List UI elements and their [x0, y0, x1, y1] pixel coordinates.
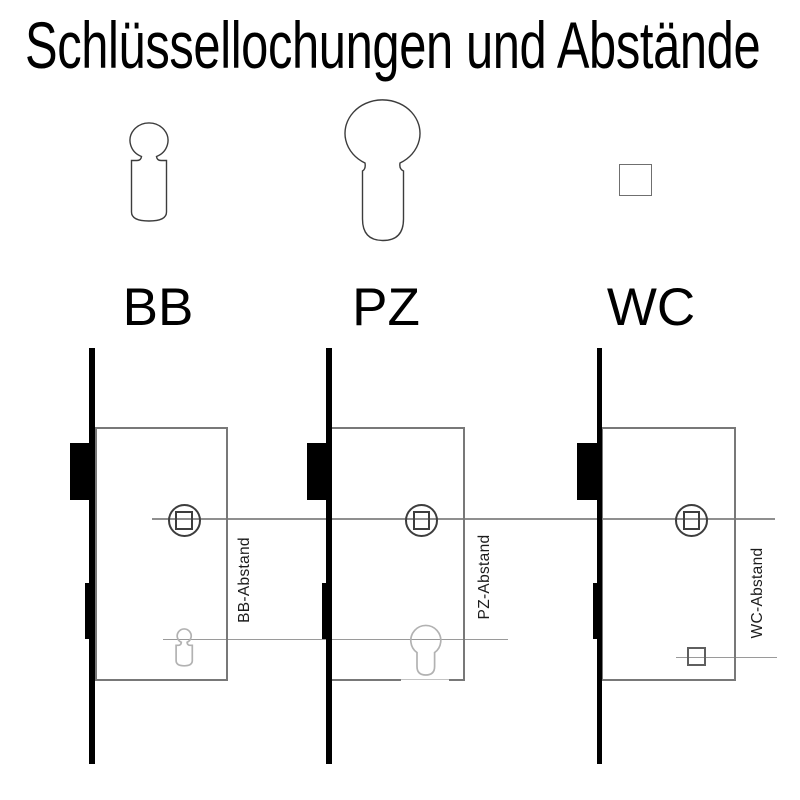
latch-bolt-pz: [307, 443, 330, 500]
pz-cylinder-icon: [330, 90, 440, 255]
dimension-label-pz: PZ-Abstand: [477, 522, 493, 632]
latch-bolt-wc: [577, 443, 600, 500]
deadbolt-pz: [322, 583, 332, 639]
lock-body-bb: [95, 427, 229, 681]
faceplate-wc: [597, 348, 603, 764]
wc-square-cutout: [687, 647, 707, 667]
bb-keyhole-icon: [120, 110, 185, 230]
spindle-square-wc: [683, 511, 701, 530]
page-title: Schlüssellochungen und Abstände: [25, 12, 760, 78]
dimension-label-bb: BB-Abstand: [237, 525, 253, 635]
deadbolt-wc: [593, 583, 603, 639]
wc-square-icon: [619, 164, 652, 197]
deadbolt-bb: [85, 583, 95, 639]
pz-cylinder-cutout: [405, 620, 450, 680]
spindle-square-bb: [175, 511, 193, 530]
diagram-canvas: Schlüssellochungen und Abstände BB PZ WC…: [0, 0, 800, 800]
key-type-label-wc: WC: [591, 281, 711, 334]
key-type-label-pz: PZ: [326, 281, 446, 334]
faceplate-pz: [326, 348, 332, 764]
faceplate-bb: [89, 348, 95, 764]
lock-body-wc: [601, 427, 737, 681]
spindle-square-pz: [413, 511, 431, 530]
bb-keyhole-cutout: [170, 622, 200, 672]
key-type-label-bb: BB: [98, 281, 218, 334]
latch-bolt-bb: [70, 443, 93, 500]
dimension-label-wc: WC-Abstand: [750, 538, 766, 648]
